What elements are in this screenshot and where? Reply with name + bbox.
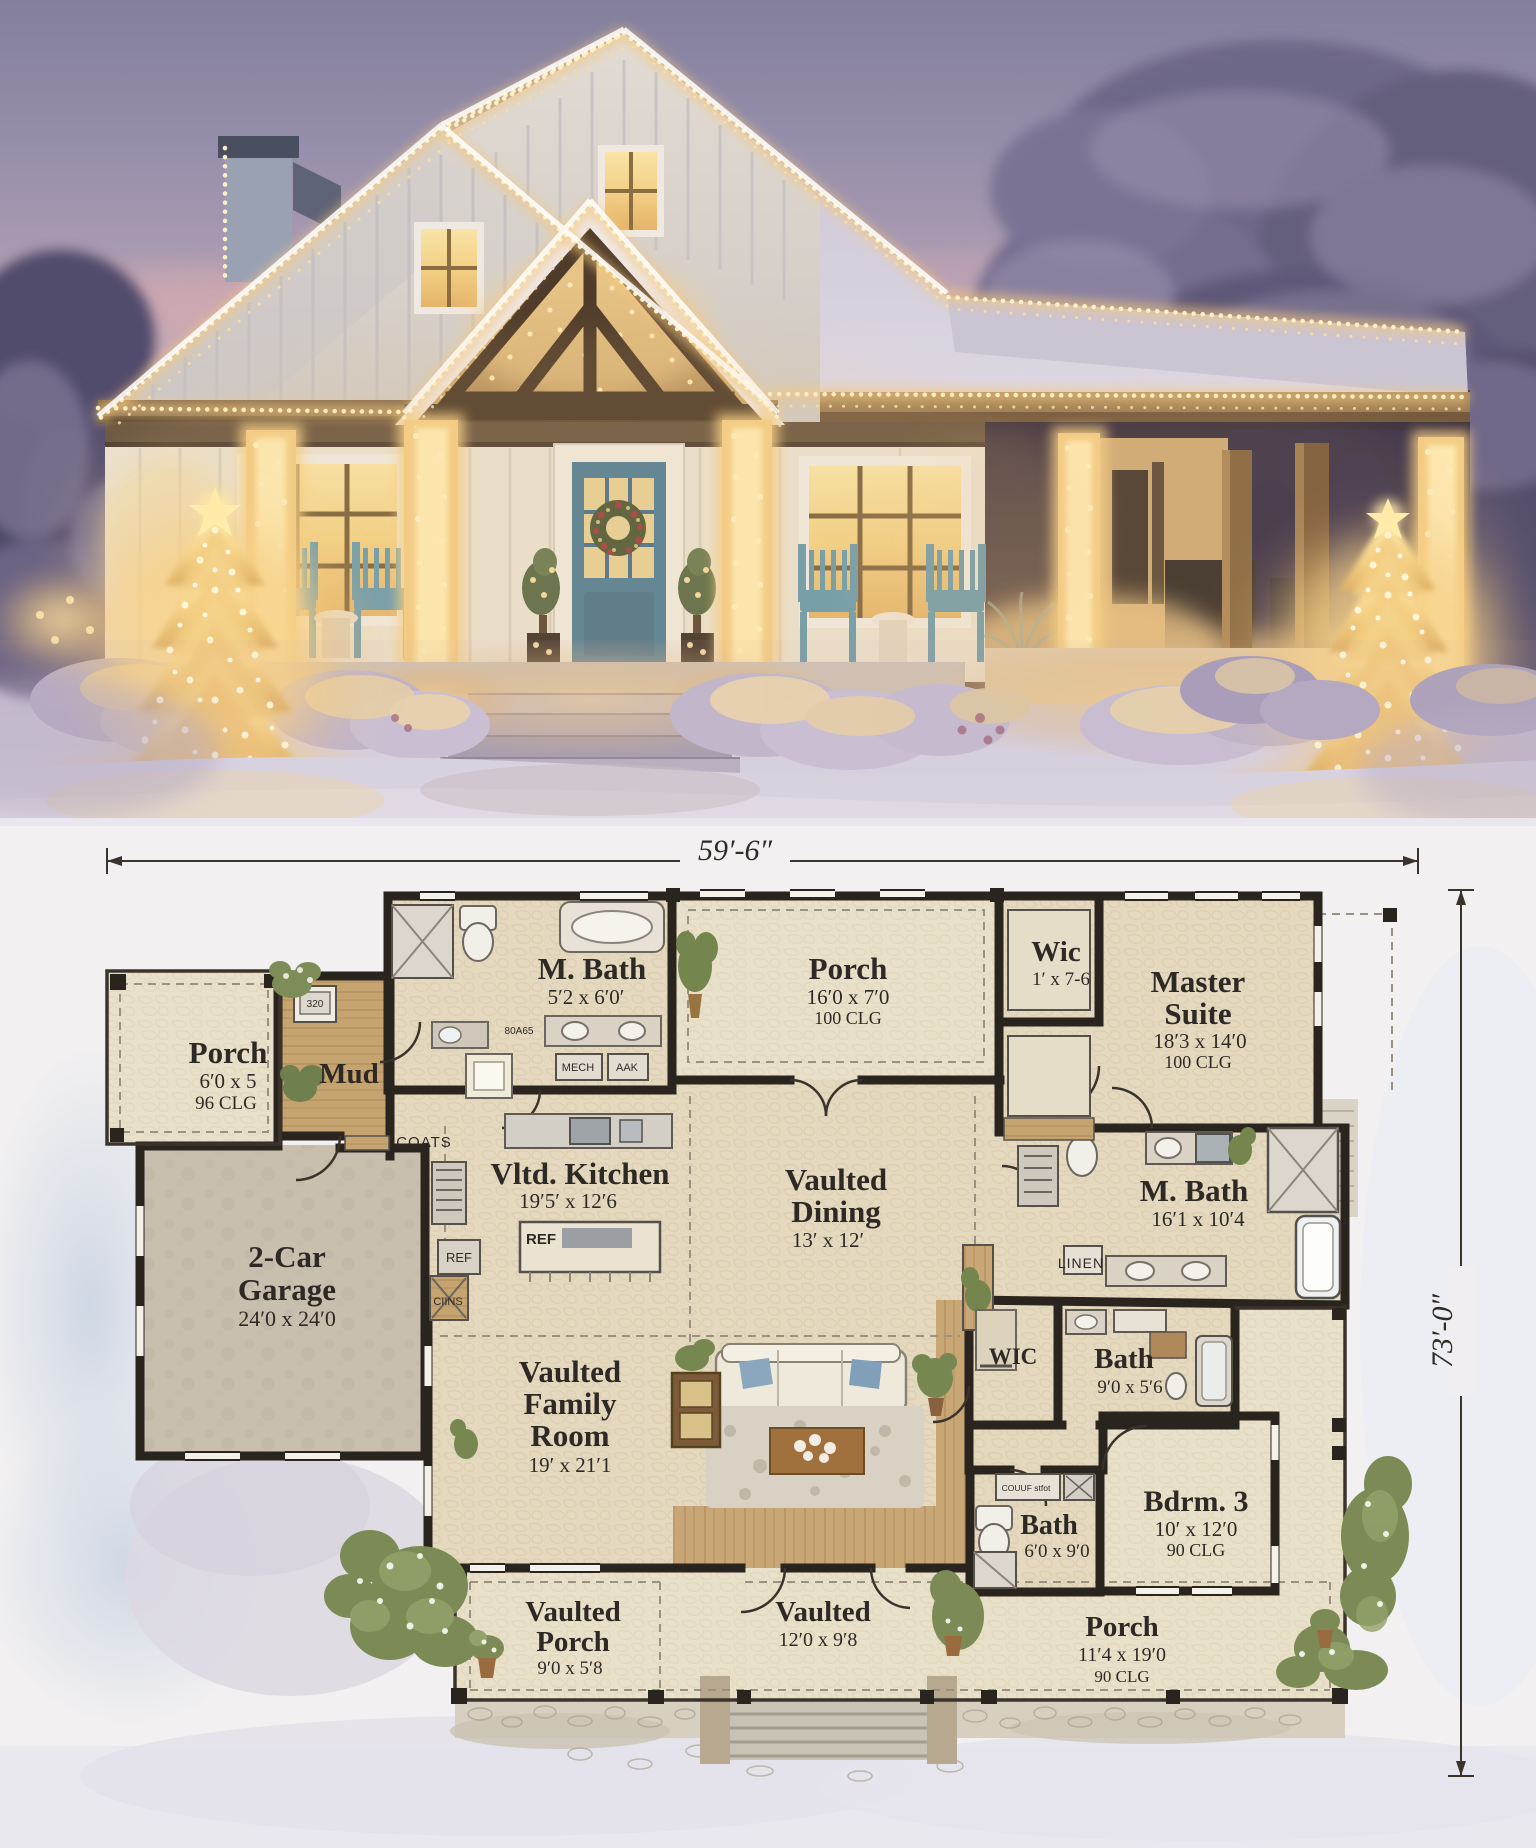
svg-text:Porch: Porch [536,1626,610,1658]
svg-text:1′ x 7-6: 1′ x 7-6 [1032,969,1090,990]
svg-text:18′3 x 14′0: 18′3 x 14′0 [1153,1029,1246,1053]
svg-text:Garage: Garage [238,1272,336,1307]
svg-text:WIC: WIC [989,1344,1038,1369]
svg-text:100 CLG: 100 CLG [1164,1052,1232,1072]
svg-text:Wic: Wic [1031,936,1081,968]
svg-text:90 CLG: 90 CLG [1094,1667,1149,1686]
svg-text:M. Bath: M. Bath [538,951,647,986]
svg-text:Vaulted: Vaulted [775,1596,871,1628]
svg-text:Vaulted: Vaulted [785,1162,887,1197]
svg-text:REF: REF [446,1250,472,1265]
svg-text:Mud: Mud [319,1058,379,1090]
svg-text:6′0 x 5: 6′0 x 5 [199,1069,256,1093]
svg-text:Family: Family [524,1386,617,1421]
svg-text:Dining: Dining [791,1194,881,1229]
svg-text:9′0 x 5′6: 9′0 x 5′6 [1097,1377,1162,1398]
svg-text:Bath: Bath [1094,1343,1154,1375]
svg-text:Master: Master [1151,964,1246,999]
svg-text:Bath: Bath [1020,1510,1078,1541]
svg-text:CIINS: CIINS [433,1296,462,1308]
svg-text:MECH: MECH [562,1062,594,1074]
svg-text:6′0 x 9′0: 6′0 x 9′0 [1024,1541,1089,1562]
svg-text:100 CLG: 100 CLG [814,1008,882,1028]
svg-text:AAK: AAK [616,1062,639,1074]
svg-text:16′0 x 7′0: 16′0 x 7′0 [807,985,890,1009]
svg-text:80A65: 80A65 [505,1026,534,1037]
svg-text:90 CLG: 90 CLG [1167,1540,1226,1560]
svg-text:16′1 x 10′4: 16′1 x 10′4 [1151,1207,1245,1231]
svg-text:2-Car: 2-Car [248,1239,326,1274]
svg-text:Vaulted: Vaulted [519,1354,621,1389]
svg-text:12′0 x 9′8: 12′0 x 9′8 [779,1629,858,1651]
svg-text:59′-6″: 59′-6″ [698,834,773,867]
svg-text:COATS: COATS [396,1134,452,1151]
svg-text:LINEN: LINEN [1058,1255,1104,1271]
svg-text:9′0 x 5′8: 9′0 x 5′8 [537,1658,602,1679]
svg-text:Room: Room [530,1418,609,1453]
svg-text:10′ x 12′0: 10′ x 12′0 [1155,1517,1238,1541]
svg-text:REF: REF [526,1231,556,1248]
svg-text:96 CLG: 96 CLG [195,1093,257,1114]
svg-text:24′0 x 24′0: 24′0 x 24′0 [238,1306,336,1331]
svg-text:320: 320 [307,999,324,1010]
svg-text:Bdrm. 3: Bdrm. 3 [1144,1485,1249,1518]
svg-text:Porch: Porch [1085,1611,1159,1643]
svg-text:Porch: Porch [189,1035,268,1070]
svg-text:Vaulted: Vaulted [525,1596,621,1628]
svg-text:Suite: Suite [1164,996,1231,1031]
svg-text:19′5′ x 12′6: 19′5′ x 12′6 [519,1189,617,1213]
svg-text:19′ x 21′1: 19′ x 21′1 [529,1453,612,1477]
svg-text:Porch: Porch [809,951,888,986]
svg-text:5′2 x 6′0′: 5′2 x 6′0′ [548,985,625,1009]
svg-text:13′ x 12′: 13′ x 12′ [792,1228,864,1252]
svg-text:Vltd. Kitchen: Vltd. Kitchen [490,1156,669,1191]
svg-text:M. Bath: M. Bath [1140,1173,1249,1208]
svg-text:11′4 x 19′0: 11′4 x 19′0 [1078,1644,1166,1666]
svg-text:73′-0″: 73′-0″ [1426,1293,1459,1368]
svg-text:COUUF stfot: COUUF stfot [1002,1483,1051,1493]
